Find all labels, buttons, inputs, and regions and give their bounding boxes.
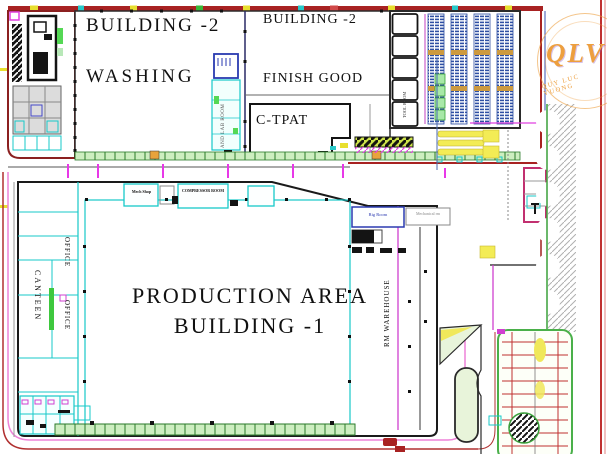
- building2-title-left: BUILDING -2: [86, 16, 220, 36]
- ctpat-label: C-TPAT: [256, 114, 308, 129]
- finish-good-label: FINISH GOOD: [263, 72, 363, 87]
- compressor-room-label: COMPRESSOR ROOM: [180, 189, 226, 193]
- road-door-ticks: [68, 164, 445, 178]
- factory-floor-plan: BUILDING -2 BUILDING -2 WASHING FINISH G…: [0, 0, 607, 454]
- office-lower-label: OFFICE: [63, 300, 70, 330]
- office-upper-label: OFFICE: [63, 237, 70, 267]
- stair-hatch: [12, 24, 22, 82]
- production-area-label: PRODUCTION AREA: [90, 284, 410, 307]
- rm-warehouse-label: RM WAREHOUSE: [384, 279, 391, 347]
- building1-title: BUILDING -1: [90, 314, 410, 337]
- parking-lot: [498, 330, 572, 454]
- canteen-label: CANTEEN: [33, 270, 41, 321]
- mech-shop-label: Mech Shop: [126, 190, 157, 194]
- dock-ramp: [355, 137, 413, 147]
- washing-area-label: WASHING: [86, 67, 195, 87]
- finish-goods-warehouse: [390, 11, 520, 128]
- building2-title-right: BUILDING -2: [263, 13, 357, 28]
- rig-room-label: Rig Room: [354, 213, 402, 218]
- logo-text: QLV: [546, 38, 605, 69]
- tool-room-label: TOOL ROOM: [403, 92, 408, 118]
- building2-service-block: [8, 11, 75, 158]
- lab-room-label: AND LAB ROOM: [221, 104, 226, 148]
- traffic-island: [455, 368, 478, 442]
- mechanical-room-label: Mechanical rm: [407, 212, 449, 216]
- hatched-circle: [509, 413, 539, 443]
